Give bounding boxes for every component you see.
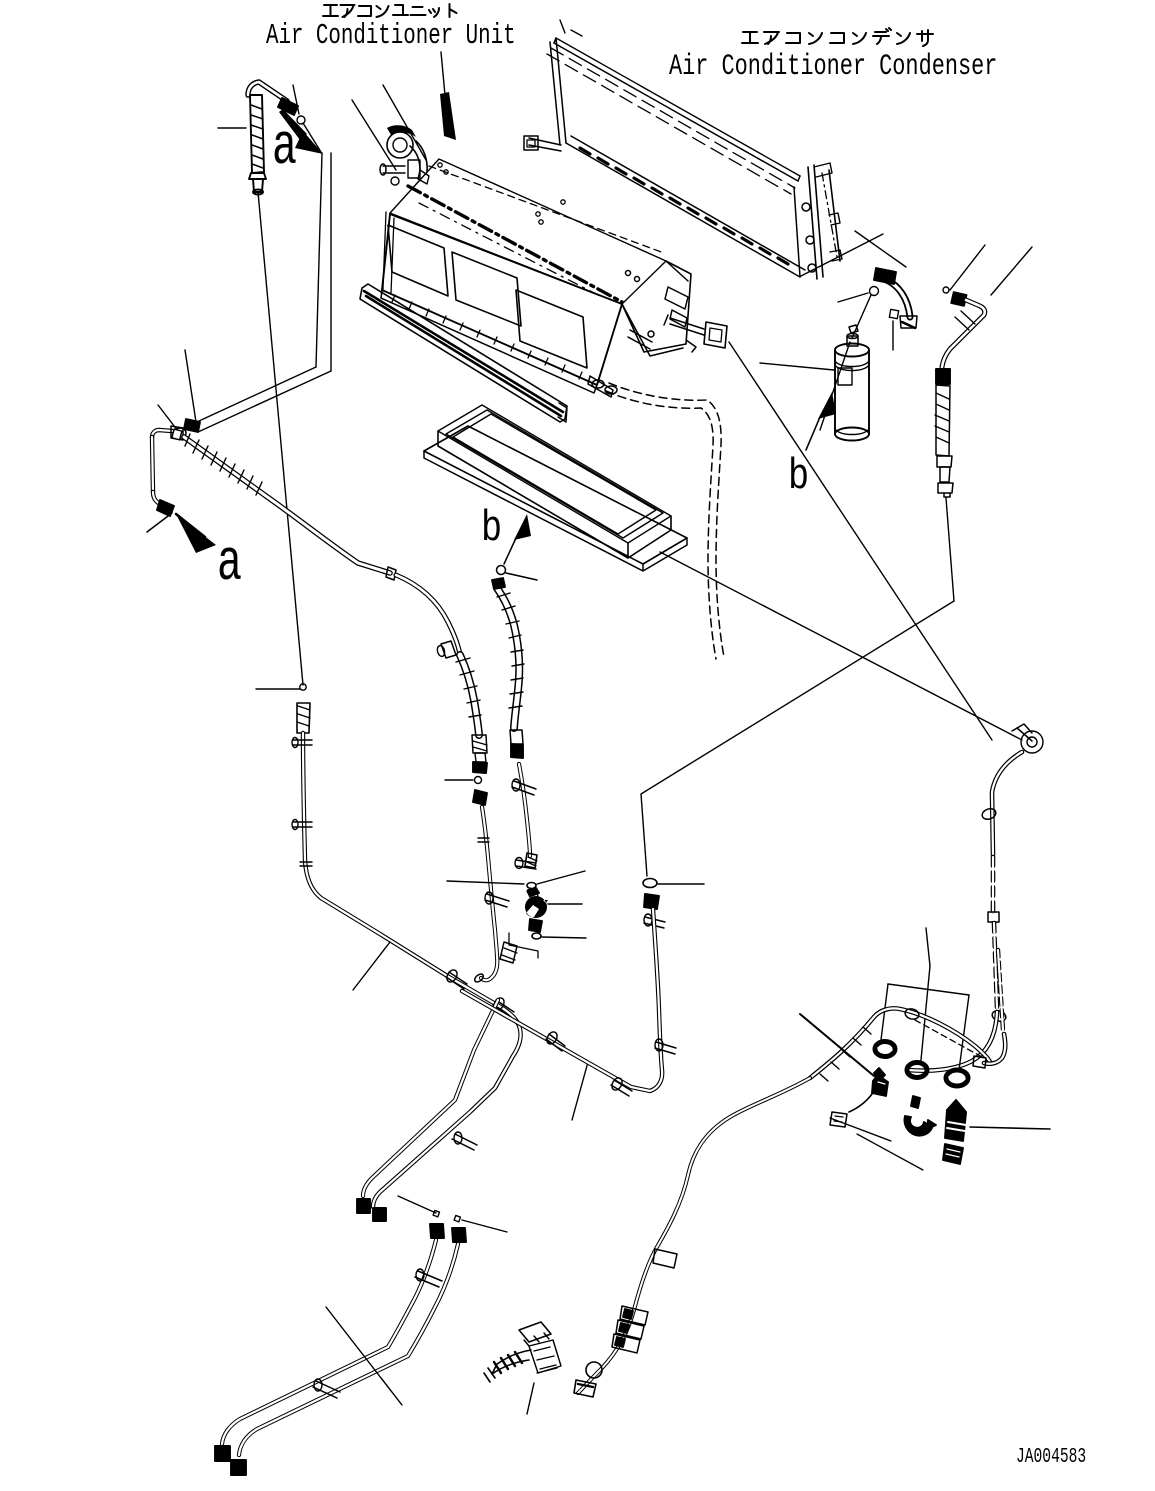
svg-text:Air Conditioner Condenser: Air Conditioner Condenser (669, 49, 997, 83)
svg-text:JA004583: JA004583 (1016, 1444, 1086, 1469)
svg-text:Air Conditioner Unit: Air Conditioner Unit (266, 20, 516, 52)
svg-text:a: a (217, 532, 242, 597)
svg-text:b: b (481, 504, 502, 554)
